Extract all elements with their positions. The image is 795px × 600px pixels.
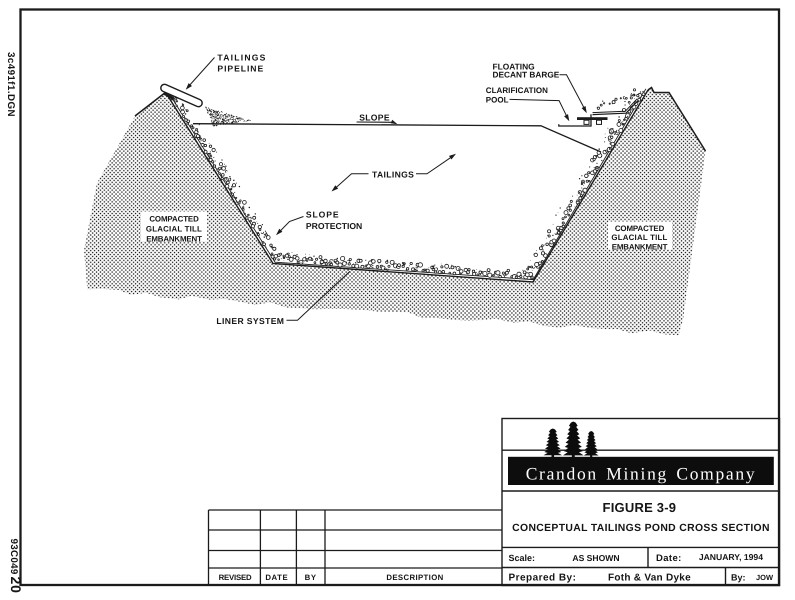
svg-text:AS SHOWN: AS SHOWN	[572, 553, 619, 563]
svg-text:93C049: 93C049	[8, 539, 19, 575]
svg-text:BY: BY	[305, 573, 317, 582]
svg-text:GLACIAL TILL: GLACIAL TILL	[611, 233, 667, 242]
svg-text:COMPACTED: COMPACTED	[149, 214, 199, 223]
svg-text:SLOPE: SLOPE	[359, 112, 390, 122]
svg-text:CLARIFICATION: CLARIFICATION	[486, 86, 548, 95]
svg-text:GLACIAL TILL: GLACIAL TILL	[146, 224, 202, 233]
svg-text:Date:: Date:	[656, 553, 682, 564]
svg-text:SLOPE: SLOPE	[306, 210, 340, 220]
svg-text:DECANT BARGE: DECANT BARGE	[493, 69, 560, 79]
svg-text:By:: By:	[731, 573, 746, 583]
svg-text:3c491f1.DGN: 3c491f1.DGN	[5, 52, 16, 117]
svg-text:EMBANKMENT: EMBANKMENT	[612, 242, 668, 251]
svg-text:Foth & Van Dyke: Foth & Van Dyke	[608, 573, 691, 584]
svg-text:PROTECTION: PROTECTION	[306, 221, 362, 231]
svg-text:PIPELINE: PIPELINE	[217, 64, 264, 74]
svg-text:DATE: DATE	[265, 573, 288, 582]
svg-text:COMPACTED: COMPACTED	[615, 224, 665, 233]
svg-text:TAILINGS: TAILINGS	[217, 53, 266, 63]
svg-text:EMBANKMENT: EMBANKMENT	[146, 234, 202, 243]
svg-text:JANUARY, 1994: JANUARY, 1994	[699, 552, 763, 562]
svg-text:TAILINGS: TAILINGS	[372, 170, 414, 180]
svg-text:Prepared By:: Prepared By:	[509, 573, 577, 584]
svg-text:POOL: POOL	[486, 95, 509, 104]
svg-text:JOW: JOW	[756, 573, 774, 582]
svg-text:Crandon Mining Company: Crandon Mining Company	[526, 464, 757, 484]
svg-text:LINER SYSTEM: LINER SYSTEM	[216, 316, 284, 326]
svg-text:DESCRIPTION: DESCRIPTION	[386, 573, 443, 582]
svg-text:REVISED: REVISED	[219, 573, 252, 582]
svg-text:FIGURE 3-9: FIGURE 3-9	[603, 500, 677, 515]
svg-text:Scale:: Scale:	[509, 553, 536, 563]
svg-text:CONCEPTUAL TAILINGS POND CROSS: CONCEPTUAL TAILINGS POND CROSS SECTION	[512, 523, 770, 534]
svg-text:20: 20	[8, 577, 24, 594]
